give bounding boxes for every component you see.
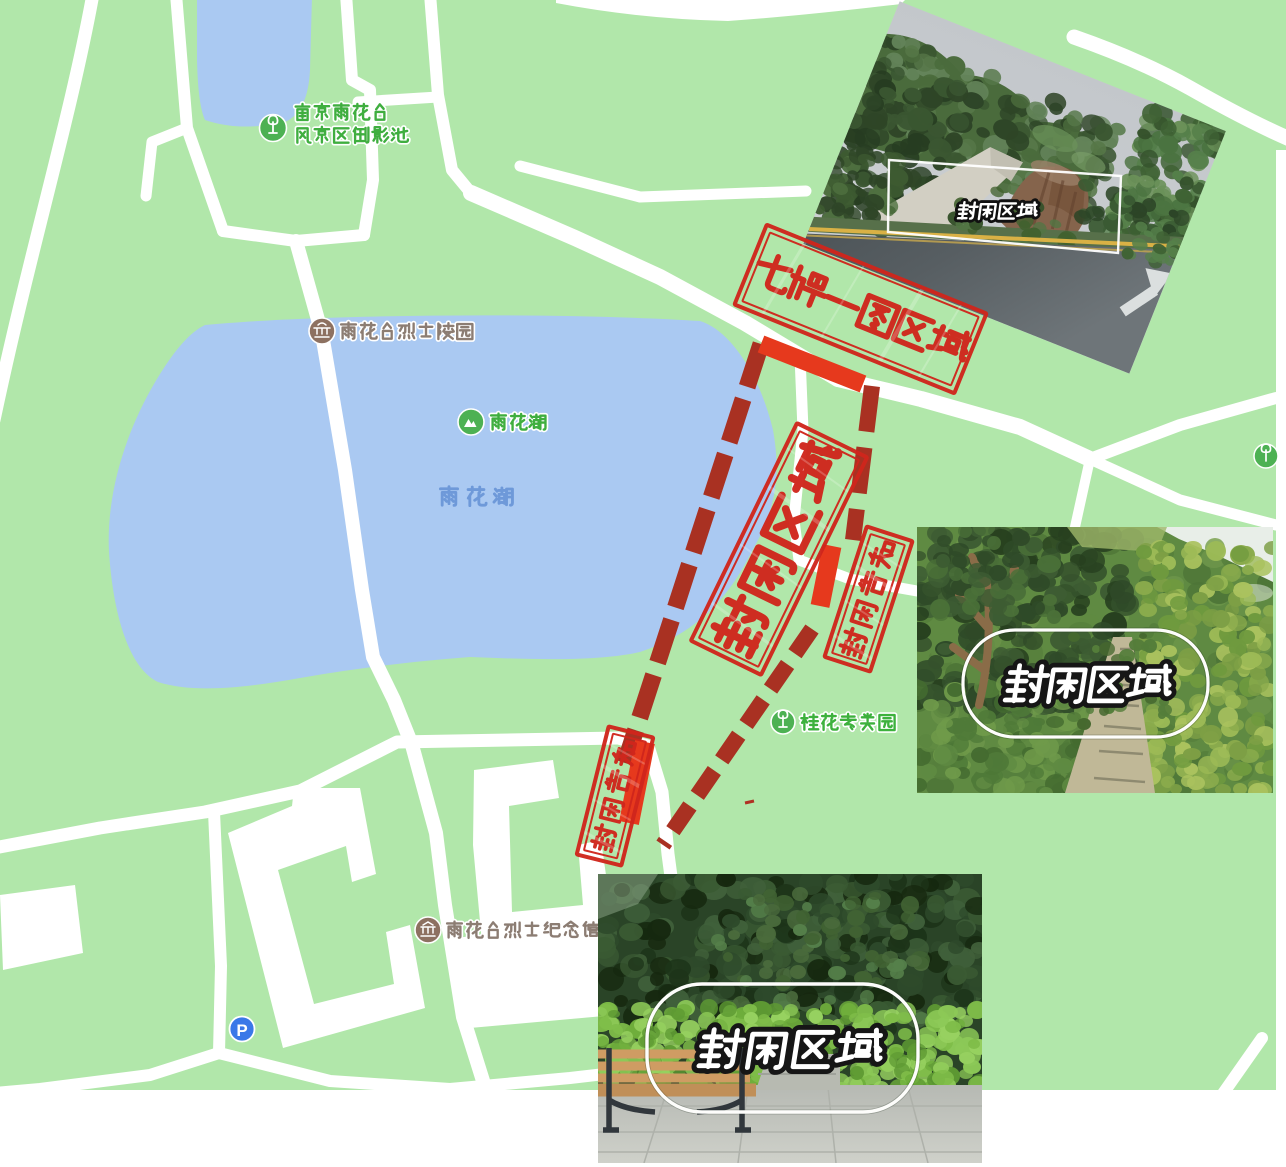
svg-text:P: P: [236, 1021, 247, 1040]
